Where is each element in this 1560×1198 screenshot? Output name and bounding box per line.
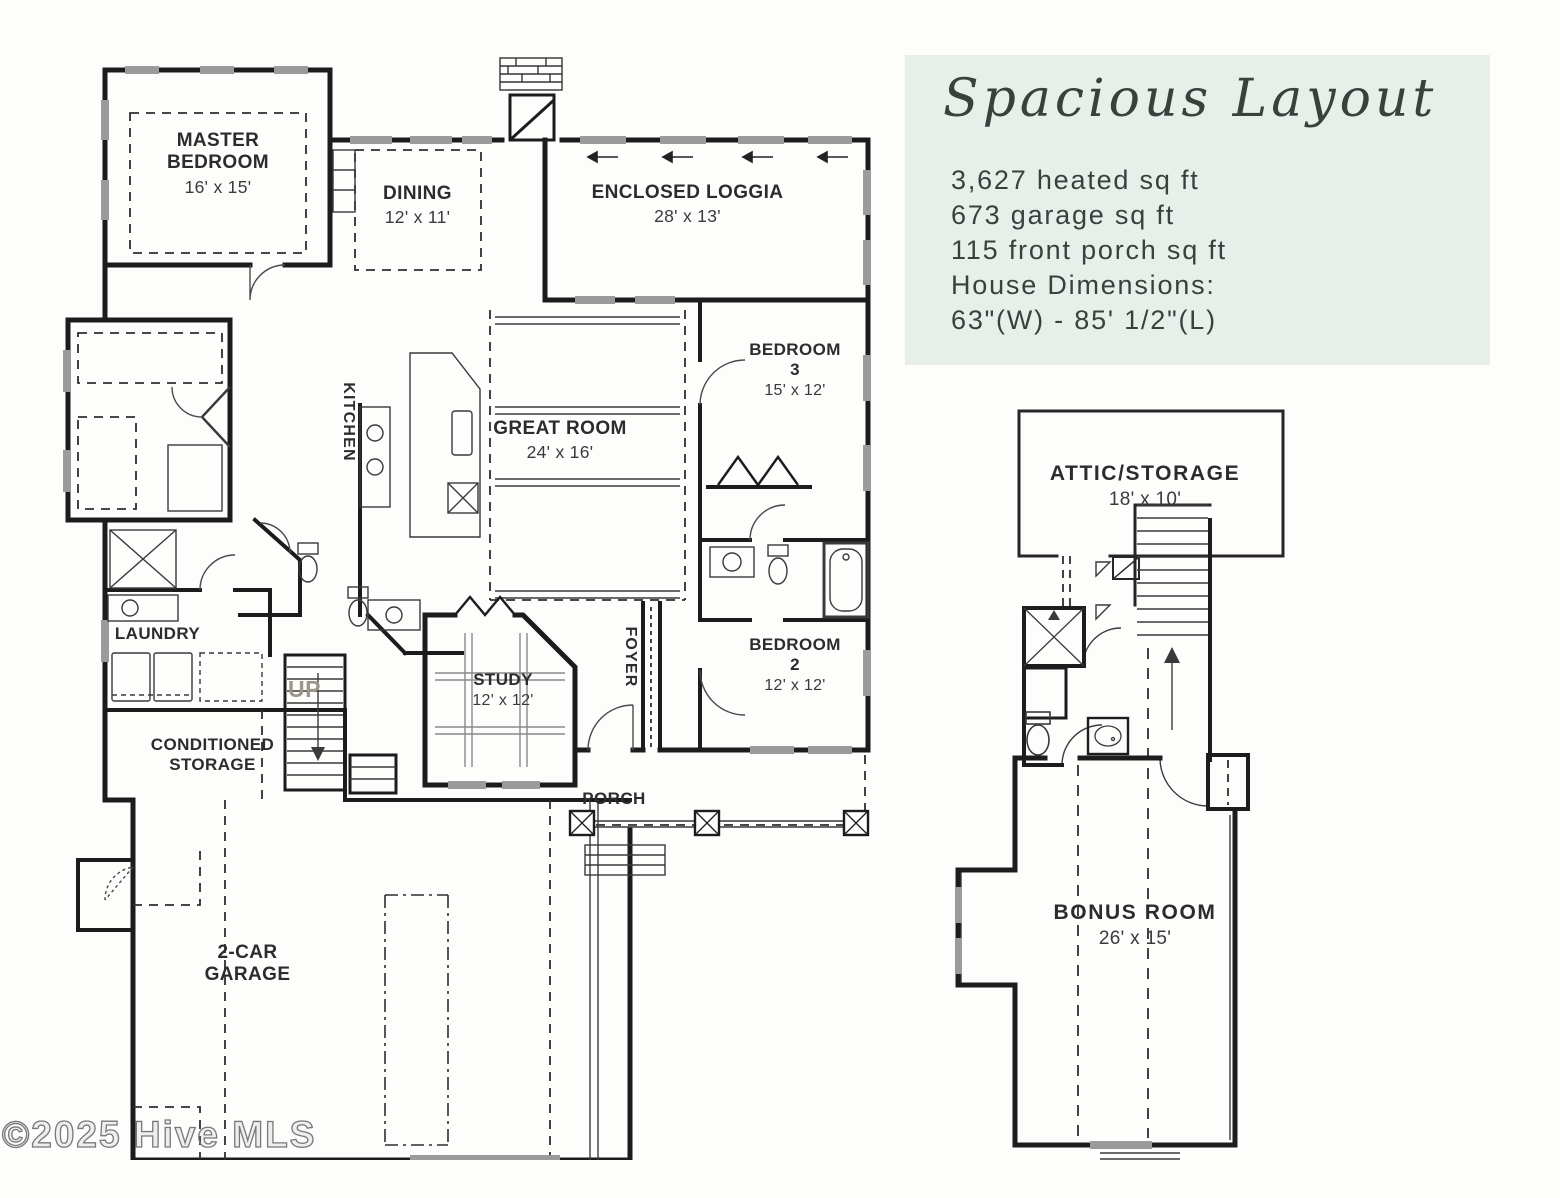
room-label-conditioned-storage: CONDITIONED STORAGE (140, 735, 285, 775)
room-dims: 26' x 15' (1030, 928, 1240, 950)
mls-watermark: ©2025 Hive MLS (2, 1114, 316, 1156)
room-name: ENCLOSED LOGGIA (565, 182, 810, 204)
room-dims: 18' x 10' (1020, 489, 1270, 511)
room-dims: 16' x 15' (153, 177, 283, 198)
room-label-bonus-room: BONUS ROOM 26' x 15' (1030, 901, 1240, 950)
room-dims: 12' x 11' (355, 207, 480, 228)
info-panel-stats: 3,627 heated sq ft 673 garage sq ft 115 … (951, 163, 1227, 338)
room-dims: 12' x 12' (443, 692, 563, 710)
garage-sqft-text: 673 garage sq ft (951, 198, 1227, 233)
house-dimensions-label: House Dimensions: (951, 268, 1227, 303)
room-name: DINING (355, 183, 480, 205)
room-name: 2-CAR GARAGE (190, 942, 305, 987)
room-name: LAUNDRY (95, 624, 220, 644)
room-label-bedroom-2: BEDROOM 2 12' x 12' (745, 635, 845, 695)
room-label-master-bedroom: MASTER BEDROOM 16' x 15' (153, 130, 283, 198)
room-dims: 28' x 13' (565, 206, 810, 227)
upper-floor-plan-drawing (950, 400, 1295, 1160)
room-label-enclosed-loggia: ENCLOSED LOGGIA 28' x 13' (565, 182, 810, 227)
room-label-kitchen: KITCHEN (333, 362, 357, 482)
house-dimensions-value: 63"(W) - 85' 1/2"(L) (951, 303, 1227, 338)
room-label-great-room: GREAT ROOM 24' x 16' (470, 418, 650, 463)
info-panel: Spacious Layout 3,627 heated sq ft 673 g… (905, 55, 1490, 365)
room-name: KITCHEN (338, 362, 357, 482)
stairs-up-label: UP (288, 676, 321, 703)
front-porch-sqft-text: 115 front porch sq ft (951, 233, 1227, 268)
room-name: MASTER BEDROOM (153, 130, 283, 175)
info-panel-title: Spacious Layout (943, 69, 1463, 129)
room-name: ATTIC/STORAGE (1020, 462, 1270, 487)
room-name: GREAT ROOM (470, 418, 650, 440)
heated-sqft-text: 3,627 heated sq ft (951, 163, 1227, 198)
room-label-foyer: FOYER (615, 597, 639, 717)
floor-plan-page: MASTER BEDROOM 16' x 15' DINING 12' x 11… (0, 0, 1560, 1198)
room-dims: 15' x 12' (745, 382, 845, 400)
room-name: CONDITIONED STORAGE (140, 735, 285, 775)
room-name: BEDROOM 2 (745, 635, 845, 675)
room-name: BONUS ROOM (1030, 901, 1240, 926)
room-name: BEDROOM 3 (745, 340, 845, 380)
room-label-2-car-garage: 2-CAR GARAGE (190, 942, 305, 987)
room-label-study: STUDY 12' x 12' (443, 670, 563, 710)
room-label-bedroom-3: BEDROOM 3 15' x 12' (745, 340, 845, 400)
room-label-attic-storage: ATTIC/STORAGE 18' x 10' (1020, 462, 1270, 511)
room-label-porch: PORCH (554, 789, 674, 809)
room-dims: 12' x 12' (745, 677, 845, 695)
room-label-laundry: LAUNDRY (95, 624, 220, 644)
room-name: FOYER (620, 597, 639, 717)
room-dims: 24' x 16' (470, 442, 650, 463)
room-name: PORCH (554, 789, 674, 809)
room-label-dining: DINING 12' x 11' (355, 183, 480, 228)
room-name: STUDY (443, 670, 563, 690)
